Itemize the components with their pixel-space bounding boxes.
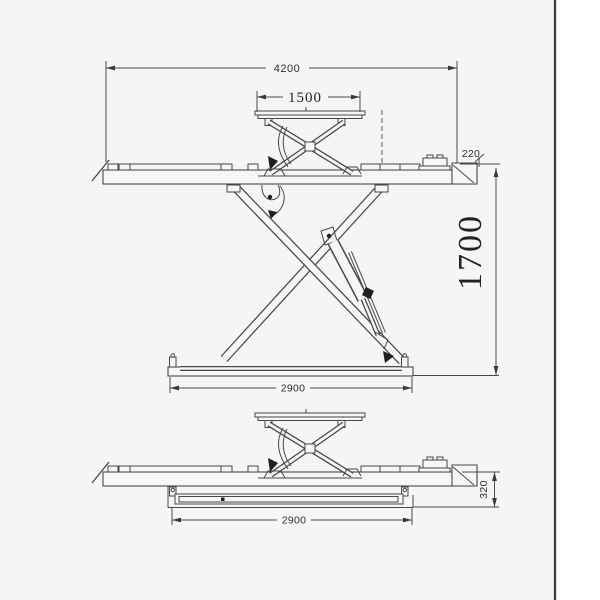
drawing-canvas: 4200 1500 220 1700	[0, 0, 600, 600]
dim-raised-height: 1700	[452, 168, 498, 375]
raised-view: 4200 1500 220 1700	[92, 61, 500, 395]
base-frame-lowered	[168, 486, 499, 508]
lowered-platform	[92, 409, 477, 486]
dim-platform-edge-height-text: 220	[462, 148, 480, 160]
dim-lowered-height-text: 320	[478, 480, 490, 498]
dim-base-length: 2900	[170, 377, 412, 395]
dim-aux-platform-length: 1500	[257, 90, 360, 112]
dim-aux-platform-length-text: 1500	[288, 90, 322, 106]
dim-overall-length-text: 4200	[274, 63, 300, 75]
dim-base-length-lowered-text: 2900	[282, 515, 307, 527]
main-scissor-mechanism	[224, 186, 402, 363]
dim-raised-height-text: 1700	[452, 214, 489, 290]
page-margin-strip	[557, 0, 600, 600]
lowered-view: 320 2900	[92, 409, 500, 527]
dim-base-length-text: 2900	[281, 383, 306, 395]
dim-platform-edge-height: 220	[460, 148, 500, 167]
raised-platform	[92, 107, 477, 184]
scissor-lift-technical-drawing: 4200 1500 220 1700	[0, 0, 600, 600]
base-frame	[168, 354, 499, 376]
dim-base-length-lowered: 2900	[172, 508, 412, 527]
